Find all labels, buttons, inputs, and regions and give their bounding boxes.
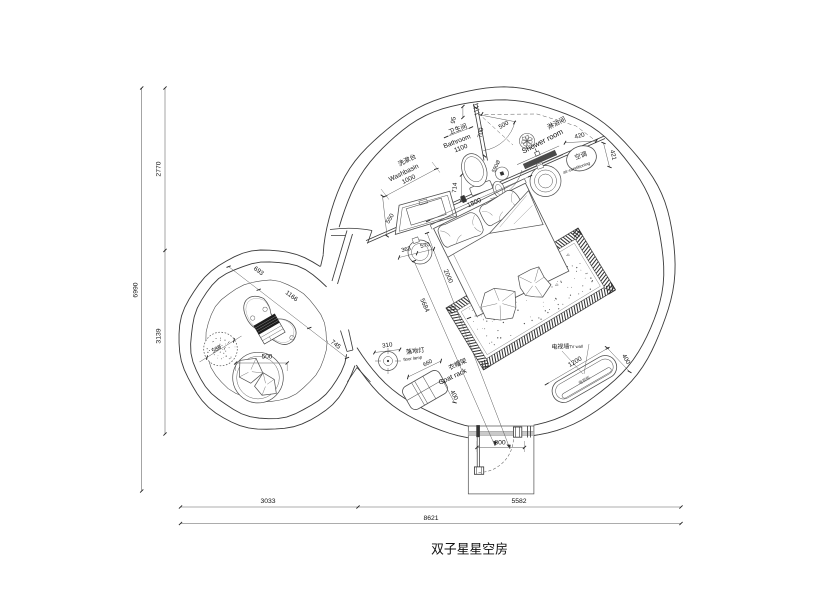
svg-text:5582: 5582 bbox=[511, 498, 526, 505]
svg-text:3139: 3139 bbox=[156, 328, 163, 343]
svg-text:双子星星空房: 双子星星空房 bbox=[431, 542, 508, 557]
svg-text:310: 310 bbox=[382, 341, 394, 349]
svg-text:2770: 2770 bbox=[156, 161, 163, 176]
svg-text:3033: 3033 bbox=[260, 498, 275, 505]
svg-text:8621: 8621 bbox=[423, 515, 438, 522]
svg-text:TV wall: TV wall bbox=[569, 344, 583, 349]
svg-text:6990: 6990 bbox=[133, 282, 140, 297]
svg-text:800: 800 bbox=[494, 440, 506, 447]
svg-text:714: 714 bbox=[451, 182, 459, 194]
svg-text:500: 500 bbox=[262, 354, 273, 361]
